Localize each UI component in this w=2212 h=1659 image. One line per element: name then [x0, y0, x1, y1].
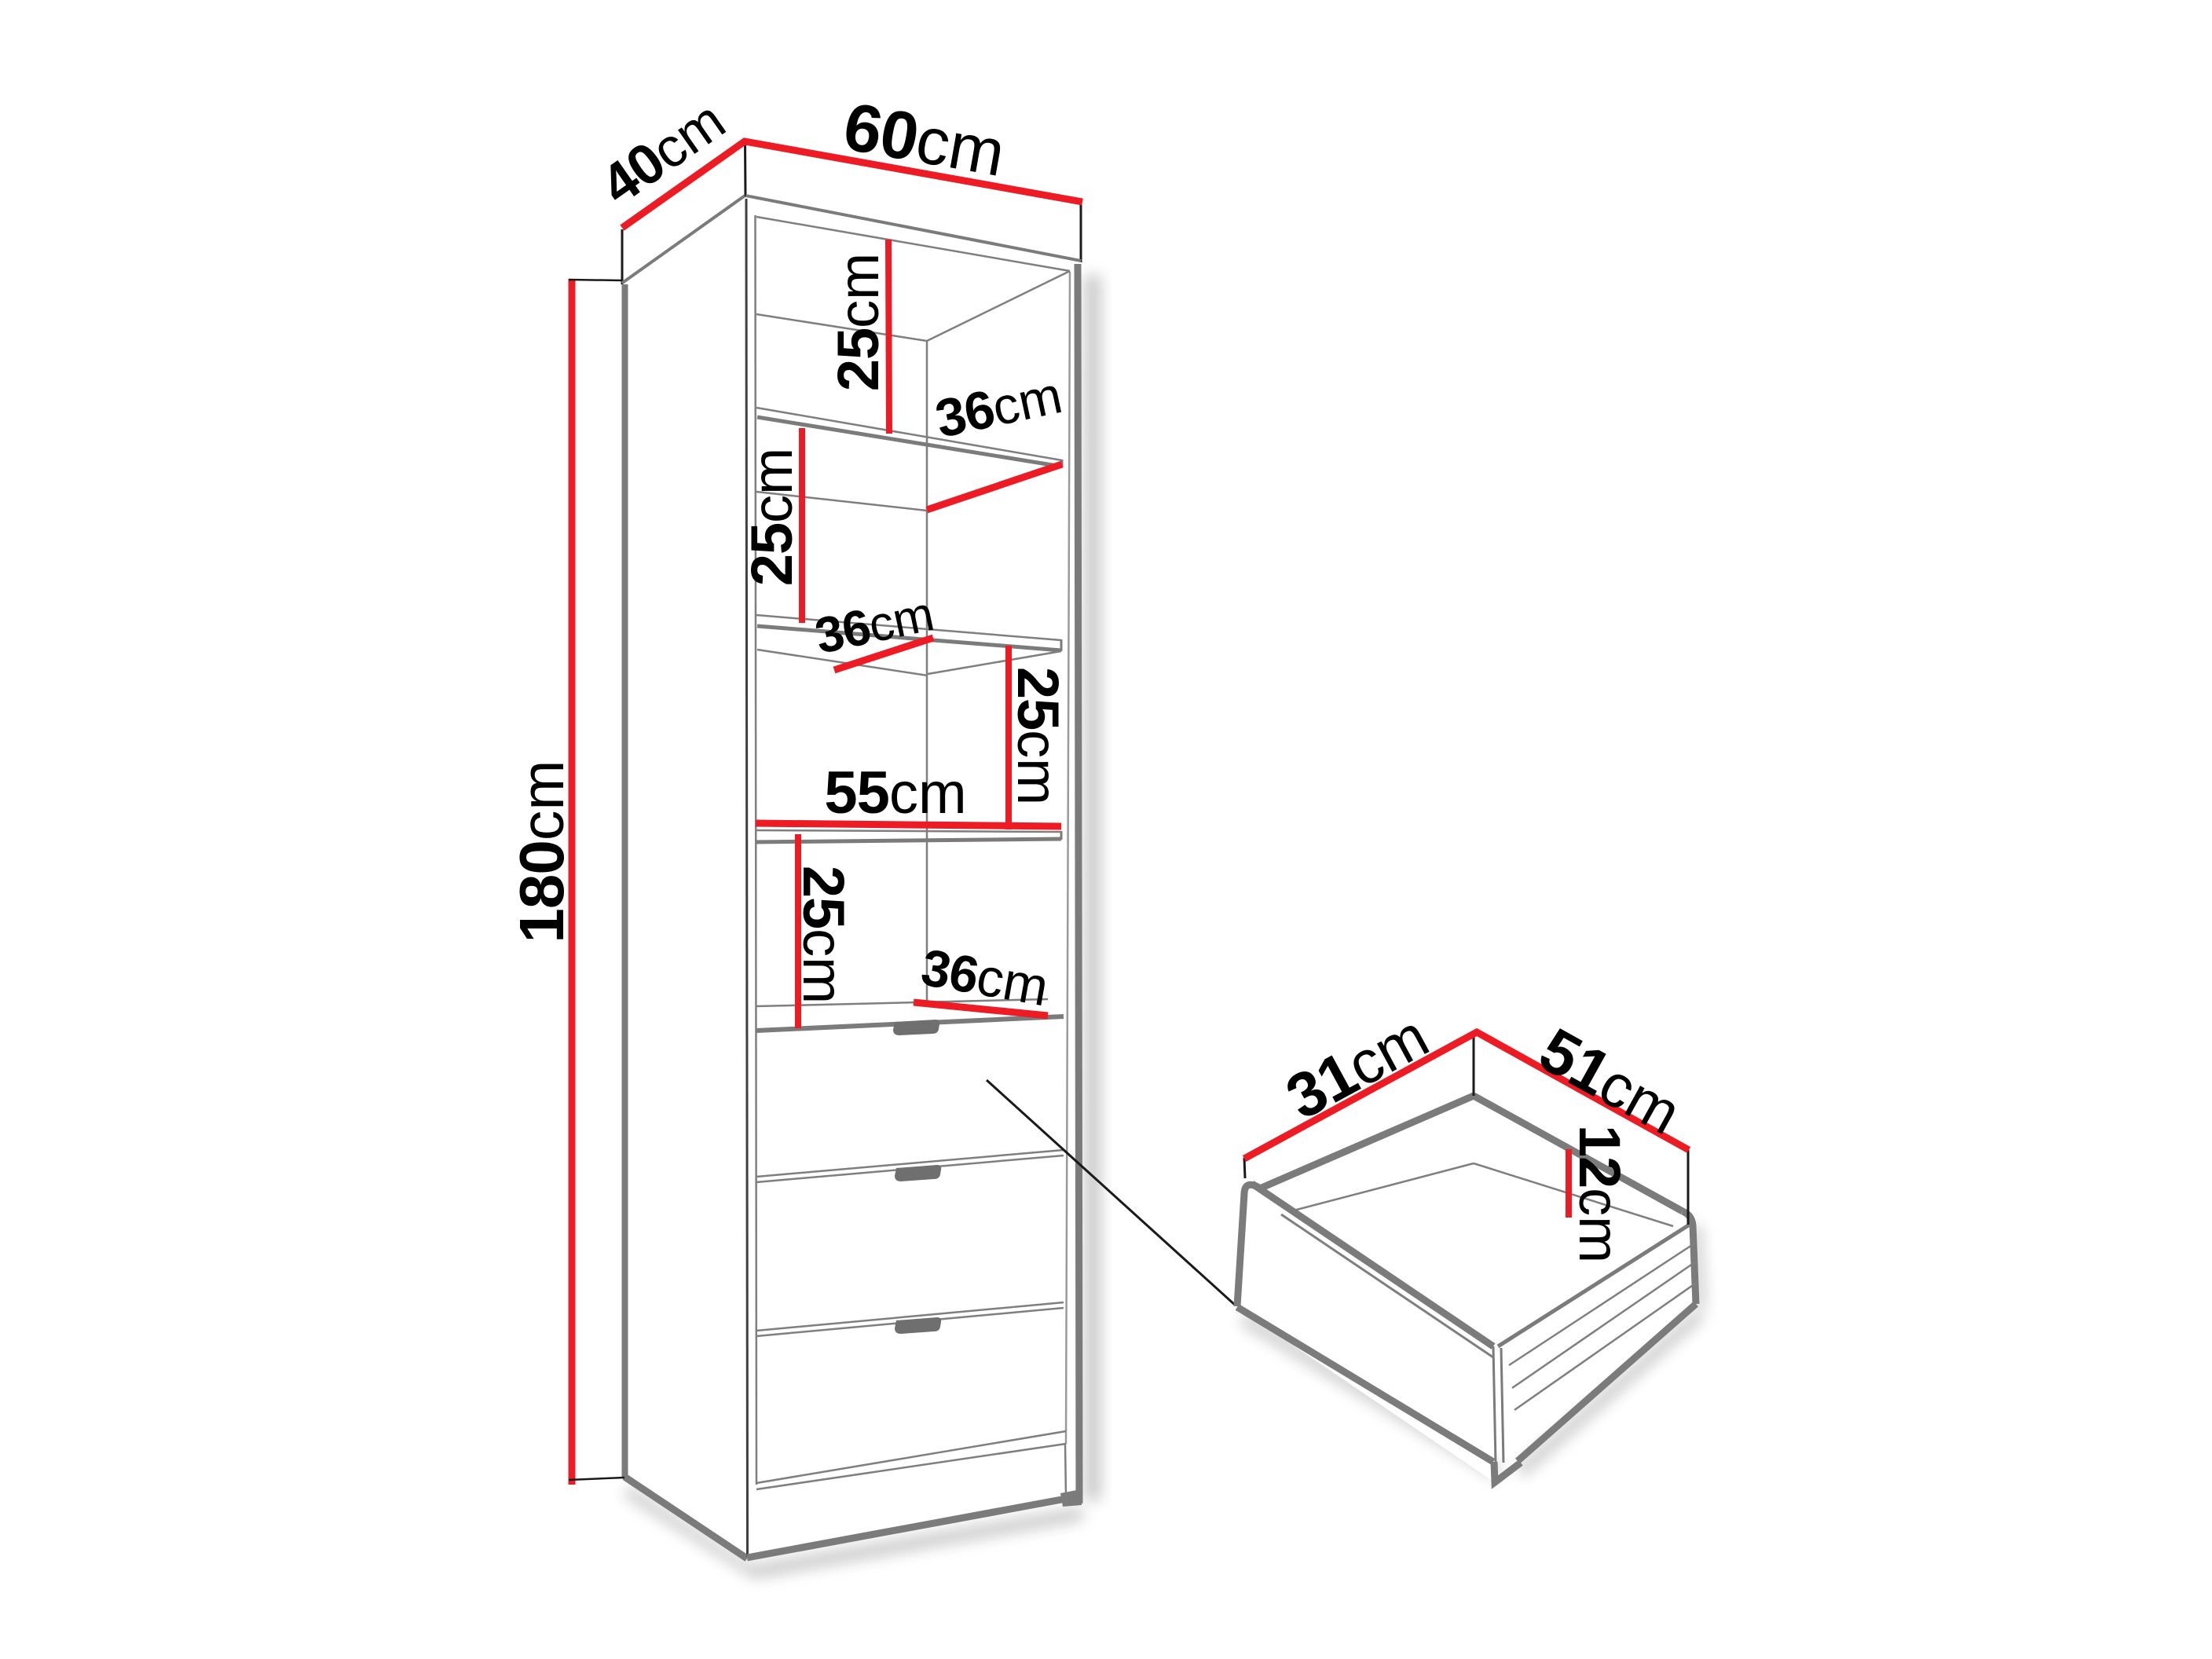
- svg-text:12cm: 12cm: [1567, 1125, 1632, 1263]
- svg-text:25cm: 25cm: [826, 253, 891, 391]
- svg-text:25cm: 25cm: [739, 448, 804, 586]
- svg-text:55cm: 55cm: [824, 760, 966, 826]
- svg-text:25cm: 25cm: [1005, 667, 1071, 805]
- svg-text:180cm: 180cm: [507, 760, 577, 943]
- svg-text:25cm: 25cm: [791, 866, 856, 1004]
